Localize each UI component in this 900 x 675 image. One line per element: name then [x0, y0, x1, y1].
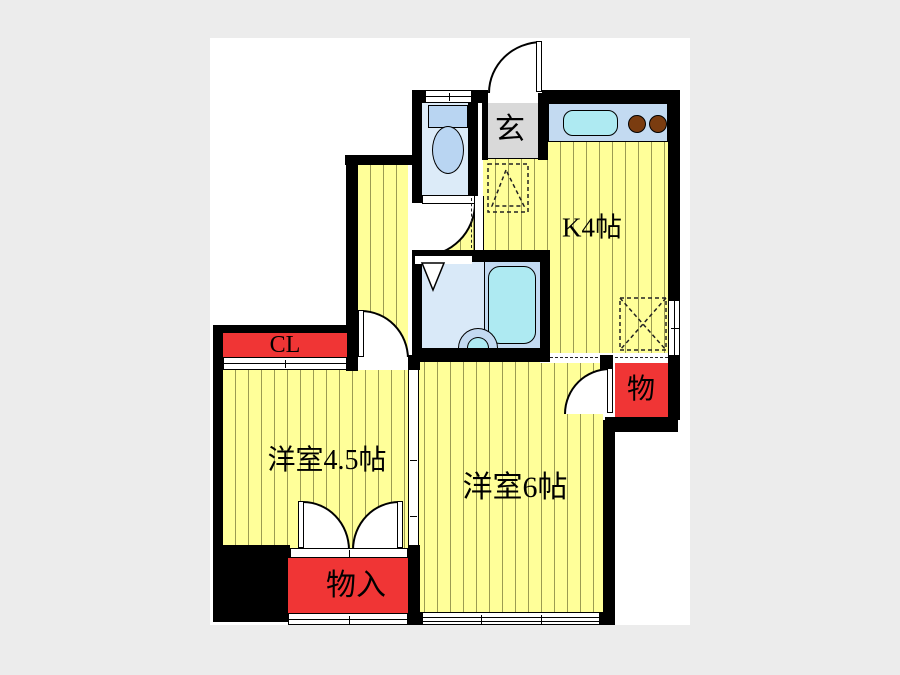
window-tick: [541, 615, 542, 624]
storage-double-door-left-leaf: [298, 501, 304, 548]
storage-right-label: 物: [627, 376, 655, 404]
bath-wall-south: [412, 348, 550, 362]
window-toilet: [425, 90, 472, 103]
wall-toilet-east: [468, 90, 478, 196]
entrance-door-arc: [488, 41, 542, 93]
step-edge-dashed-line: [471, 198, 472, 248]
bath-folding-door-icon: [420, 262, 446, 292]
window-tick: [449, 93, 450, 101]
wall-right-lower: [603, 420, 615, 625]
window-kitchen-east: [668, 300, 680, 356]
stove-burner-icon: [628, 115, 646, 133]
slider-tick: [349, 550, 350, 557]
window-tick: [481, 615, 482, 624]
slider-tick: [410, 460, 417, 461]
floor-plan-page: 玄 K4帖: [0, 0, 900, 675]
hall-doorway-band: [358, 357, 408, 370]
bath-wall-east: [540, 250, 550, 362]
hall-door-leaf: [358, 310, 364, 357]
wall-bottom-stub-right: [600, 612, 613, 625]
shoe-cabinet-space: [486, 162, 530, 214]
storage-double-door-right-leaf: [397, 501, 403, 548]
slider-tick: [410, 516, 417, 517]
western-room-6-label: 洋室6帖: [463, 473, 568, 503]
wall-mass-bottom-left: [213, 545, 290, 622]
toilet-tank-fixture: [428, 105, 468, 128]
wall-room-divider-lower: [408, 545, 420, 625]
storage-bottom-label: 物入: [326, 571, 386, 601]
wall-toilet-west: [412, 90, 422, 203]
window-line: [423, 617, 599, 618]
closet-cl-label: CL: [270, 333, 301, 357]
bathtub-fixture: [488, 266, 536, 344]
wall-hall-west: [346, 155, 358, 371]
wall-right-upper: [668, 90, 680, 300]
window-room6-south: [422, 612, 600, 625]
wall-step-horizontal: [605, 417, 678, 432]
window-line: [423, 621, 599, 622]
step-edge-lines: [474, 196, 484, 250]
wall-right-mid: [668, 356, 680, 420]
window-tick: [671, 328, 679, 329]
wall-west: [213, 325, 223, 560]
slider-tick: [285, 360, 286, 368]
toilet-bowl-fixture: [432, 126, 464, 174]
floor-plan: 玄 K4帖: [210, 38, 690, 625]
window-tick: [349, 616, 350, 624]
room-divider-sliding-door: [408, 370, 419, 545]
wall-entrance-west: [482, 90, 488, 160]
wall-top-3: [538, 90, 680, 103]
wall-entrance-east: [538, 90, 548, 160]
entrance-label: 玄: [495, 115, 525, 145]
stove-burner-icon: [649, 115, 667, 133]
kitchen-sink: [563, 110, 618, 136]
kitchen-label: K4帖: [562, 215, 622, 242]
storage-door-leaf: [607, 368, 613, 413]
western-room-45-label: 洋室4.5帖: [267, 447, 386, 475]
window-line: [289, 619, 407, 620]
window-storage-south: [288, 613, 408, 625]
wall-room-divider-upper: [408, 355, 420, 370]
closet-cl-sliding-door: [223, 357, 347, 370]
entrance-door-leaf: [536, 41, 542, 92]
refrigerator-space: [618, 296, 668, 352]
storage-front-band: [290, 548, 408, 558]
toilet-door-leaf: [422, 195, 478, 204]
